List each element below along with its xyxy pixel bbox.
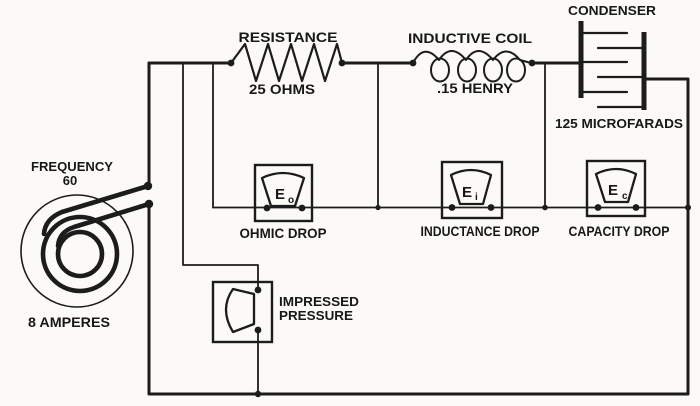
meter-symbol-subscript: o [288,195,294,206]
frequency-label: FREQUENCY [31,159,113,174]
meter-terminal [255,327,262,334]
ohmic-drop-caption: OHMIC DROP [240,225,327,241]
inductance-drop-meter: E i INDUCTANCE DROP [421,162,540,239]
impressed-pressure-meter: IMPRESSED PRESSURE [213,282,359,342]
meter-symbol-subscript: i [475,192,478,203]
junction-dot [375,205,380,210]
condenser-left-plates [583,33,627,92]
junction-dot [685,205,691,211]
generator-symbol: FREQUENCY 60 8 AMPERES [21,159,153,330]
inductance-drop-caption: INDUCTANCE DROP [421,223,540,239]
meter-face [226,289,254,332]
coil-loop [431,59,449,82]
meter-symbol: E [462,184,472,201]
amperes-label: 8 AMPERES [28,314,110,330]
coil-loop [458,59,476,82]
schematic-canvas: FREQUENCY 60 8 AMPERES RESISTANCE 25 OHM… [0,0,700,406]
junction-dot [542,205,548,211]
impressed-pressure-feed-wire [183,63,258,290]
impressed-pressure-caption-line1: IMPRESSED [279,294,359,309]
meter-symbol: E [608,182,618,199]
meter-terminal [255,287,262,294]
coil-loop [507,59,525,82]
coil-loop [484,59,502,82]
meter-terminal [264,205,271,212]
inductor-symbol: INDUCTIVE COIL .15 HENRY [408,30,535,96]
frequency-value: 60 [63,173,77,188]
impressed-pressure-caption-line2: PRESSURE [279,308,353,323]
meter-terminal [488,204,495,211]
resistor-symbol: RESISTANCE 25 OHMS [228,29,346,97]
meter-terminal [633,204,640,211]
junction-dot [529,60,536,67]
inductive-coil-value: .15 HENRY [437,80,514,96]
junction-dot [339,60,346,67]
circuit-diagram: FREQUENCY 60 8 AMPERES RESISTANCE 25 OHM… [0,0,700,406]
meter-terminal [449,204,456,211]
capacity-drop-meter: E c CAPACITY DROP [569,161,670,239]
condenser-right-plates [598,48,642,107]
meter-symbol-subscript: c [622,191,628,202]
resistance-value: 25 OHMS [249,81,315,97]
junction-dot [145,200,153,208]
condenser-symbol: CONDENSER 125 MICROFARADS [555,3,683,131]
resistance-label: RESISTANCE [239,29,338,45]
junction-dot [410,60,417,67]
junction-dot [144,182,152,190]
condenser-value: 125 MICROFARADS [555,116,683,131]
resistor-zigzag [231,44,342,81]
meter-terminal [595,204,602,211]
meter-symbol: E [275,186,285,203]
capacity-drop-caption: CAPACITY DROP [569,223,670,239]
junction-dot [228,60,235,67]
condenser-label: CONDENSER [568,3,657,18]
junction-dot [255,391,261,397]
meter-terminal [299,205,306,212]
inductive-coil-label: INDUCTIVE COIL [408,30,532,46]
generator-coil-inner [58,232,102,276]
generator-coil-outer [43,217,117,291]
ohmic-drop-meter: E o OHMIC DROP [240,165,327,241]
